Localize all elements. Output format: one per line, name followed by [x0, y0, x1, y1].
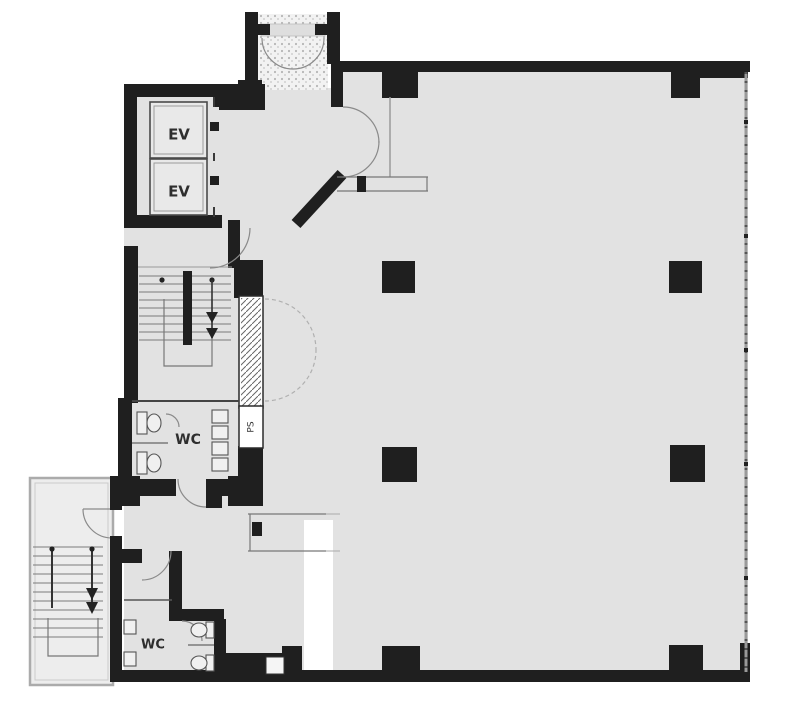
toilet-tank [137, 412, 147, 434]
pipe-shaft-label: PS [247, 421, 257, 432]
bottom-exterior-wall [110, 670, 750, 682]
entrance-jamb-wall [331, 61, 343, 107]
shaft-hatch [241, 298, 261, 406]
column [669, 261, 702, 293]
left-exterior-wall-a [110, 476, 122, 510]
column [382, 646, 420, 680]
top-right-wall-bar [700, 70, 748, 78]
toilet-bowl [147, 454, 161, 472]
sink [212, 442, 228, 455]
porch-post-right [327, 12, 340, 64]
column [671, 70, 700, 98]
wc-left-wall [118, 398, 132, 482]
column [382, 70, 418, 98]
column [670, 445, 705, 482]
wc-upper-south-wall-left [132, 479, 176, 496]
wc-lower-right-wall [214, 619, 226, 675]
column [382, 447, 417, 482]
windbreak-post [357, 176, 366, 192]
main-office-area [333, 70, 748, 678]
wc-lower-label: WC [141, 638, 165, 653]
elevator-2-label: EV [168, 183, 190, 201]
column [382, 261, 415, 293]
floor-plan-drawing: EV EV PS [0, 0, 787, 717]
wc-upper-label: WC [175, 432, 201, 448]
sink [212, 458, 228, 471]
porch-post-left [245, 12, 258, 86]
porch-post-arm-right [315, 24, 327, 35]
lower-hall-wall-stub [112, 549, 142, 563]
south-doorway-post [252, 522, 262, 536]
elevator-1-label: EV [168, 126, 190, 144]
stair-center-rail [183, 271, 192, 345]
rail-post-dot [49, 546, 54, 551]
meter-box [266, 657, 284, 674]
ev-room-left-wall [124, 84, 137, 227]
rail-post-dot [159, 277, 164, 282]
pipe-shaft-strip: PS [239, 296, 263, 448]
porch-post-base [238, 80, 262, 100]
external-staircase [30, 478, 113, 685]
floor-plan-canvas: EV EV PS [0, 0, 787, 717]
south-wall-band [225, 653, 302, 680]
toilet-bowl [191, 623, 207, 637]
ev-door-tick [210, 122, 219, 131]
core-wall-block-a [234, 260, 263, 298]
doorway-side-wall [206, 486, 222, 508]
column [669, 645, 703, 682]
urinal [124, 652, 136, 666]
ev-door-tick [210, 176, 219, 185]
stairwell-left-wall [124, 246, 138, 403]
ev-room-bottom-wall [124, 215, 222, 228]
toilet-bowl [191, 656, 207, 670]
porch-post-arm-left [258, 24, 270, 35]
rail-post-dot [89, 546, 94, 551]
toilet-bowl [147, 414, 161, 432]
toilet-tank [137, 452, 147, 474]
core-corner-block [228, 476, 263, 506]
sink [212, 410, 228, 423]
sink [212, 426, 228, 439]
urinal [124, 620, 136, 634]
